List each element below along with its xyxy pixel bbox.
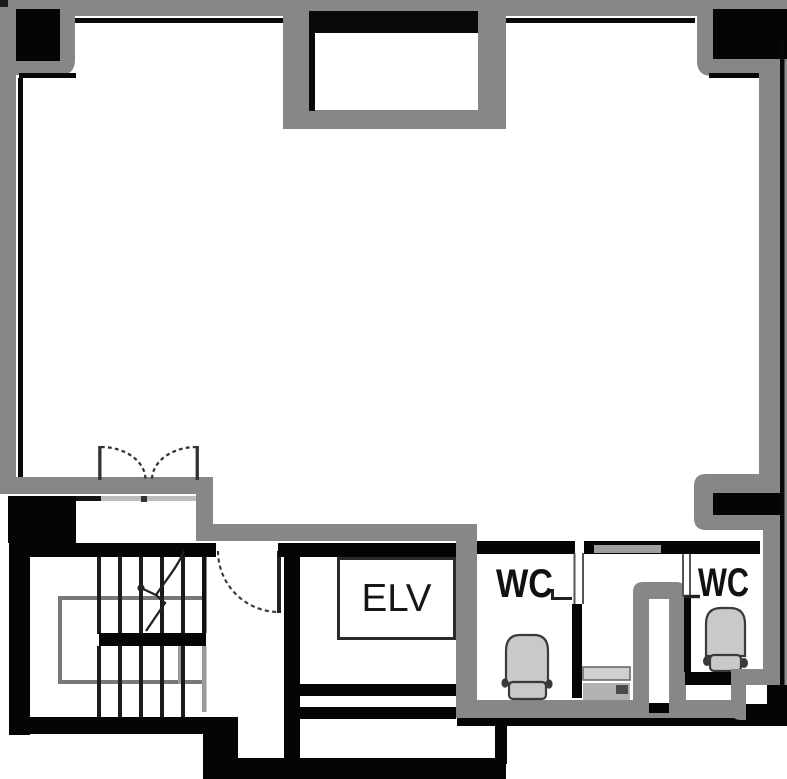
svg-text:ELV: ELV (362, 577, 432, 620)
svg-text:WC: WC (698, 561, 749, 605)
svg-text:WC: WC (496, 562, 553, 606)
